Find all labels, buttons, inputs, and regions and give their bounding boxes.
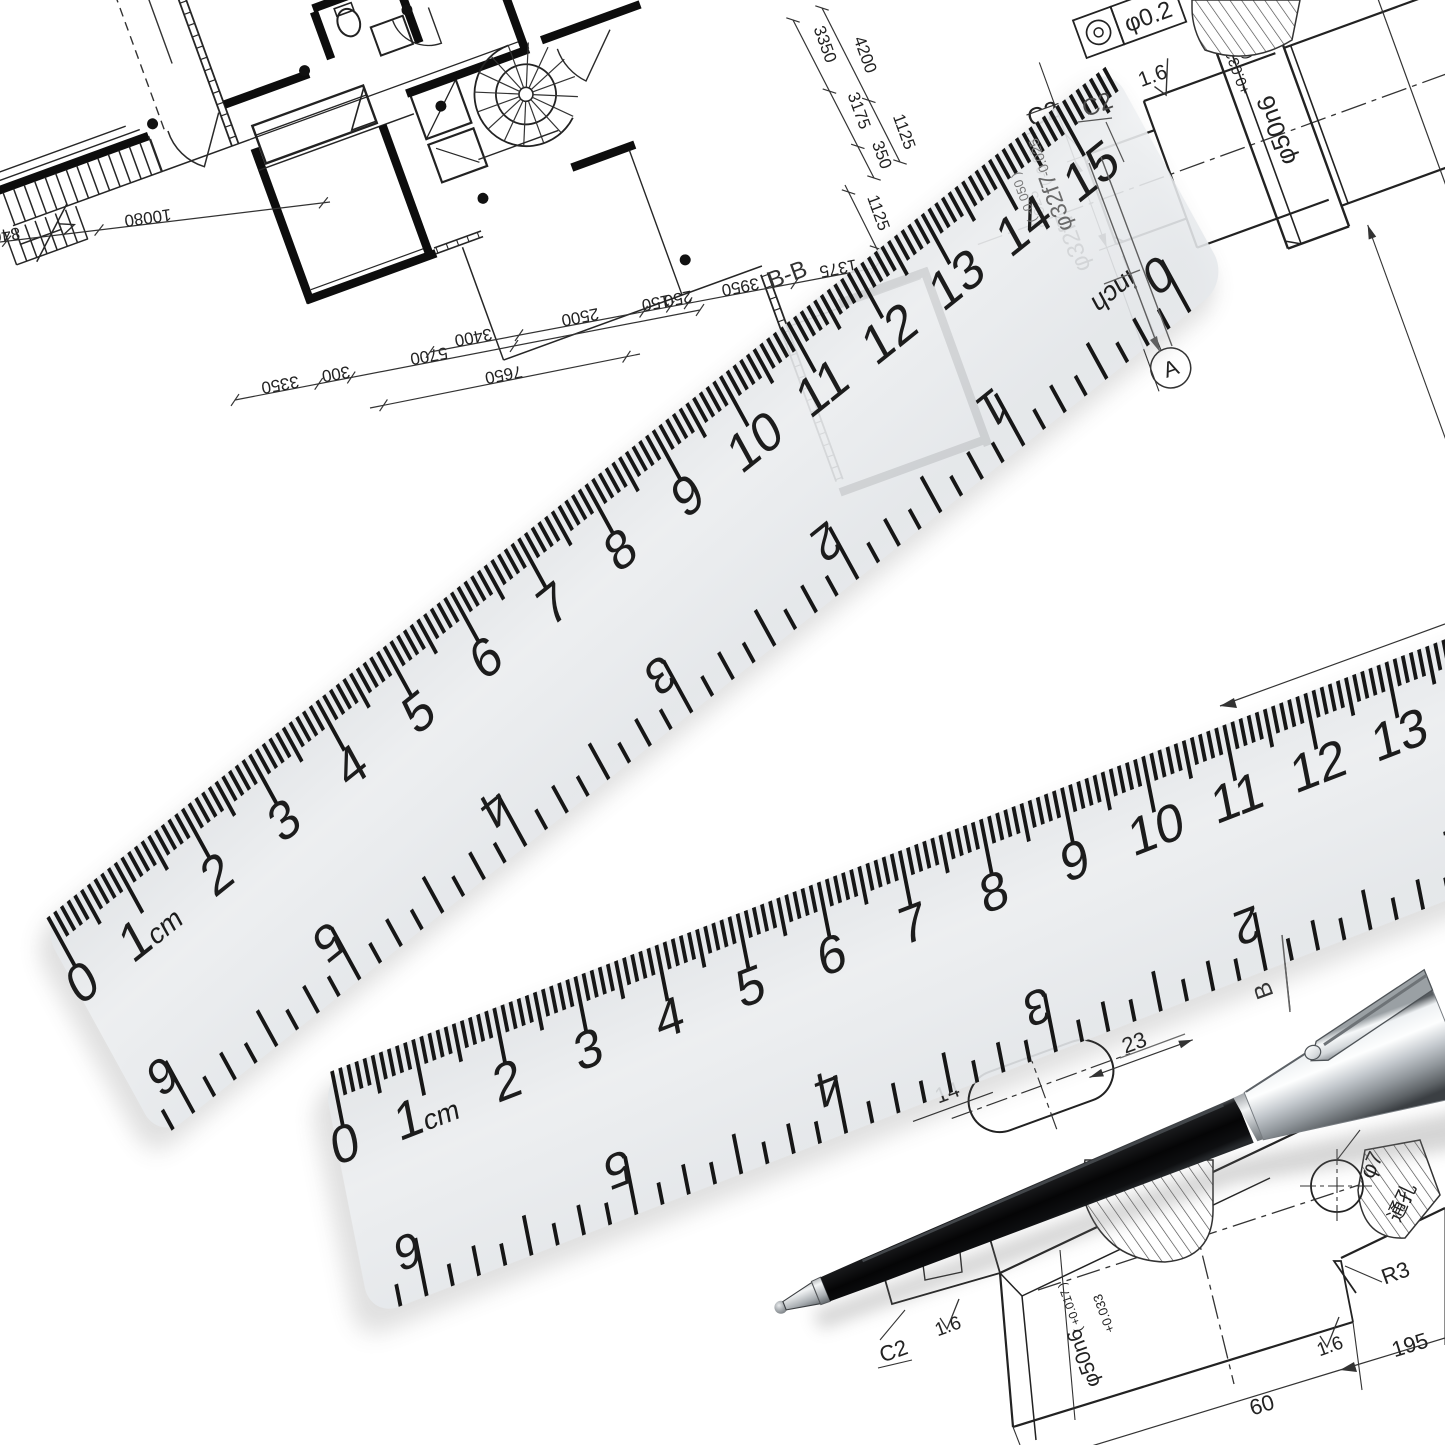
- svg-text:840: 840: [0, 223, 21, 246]
